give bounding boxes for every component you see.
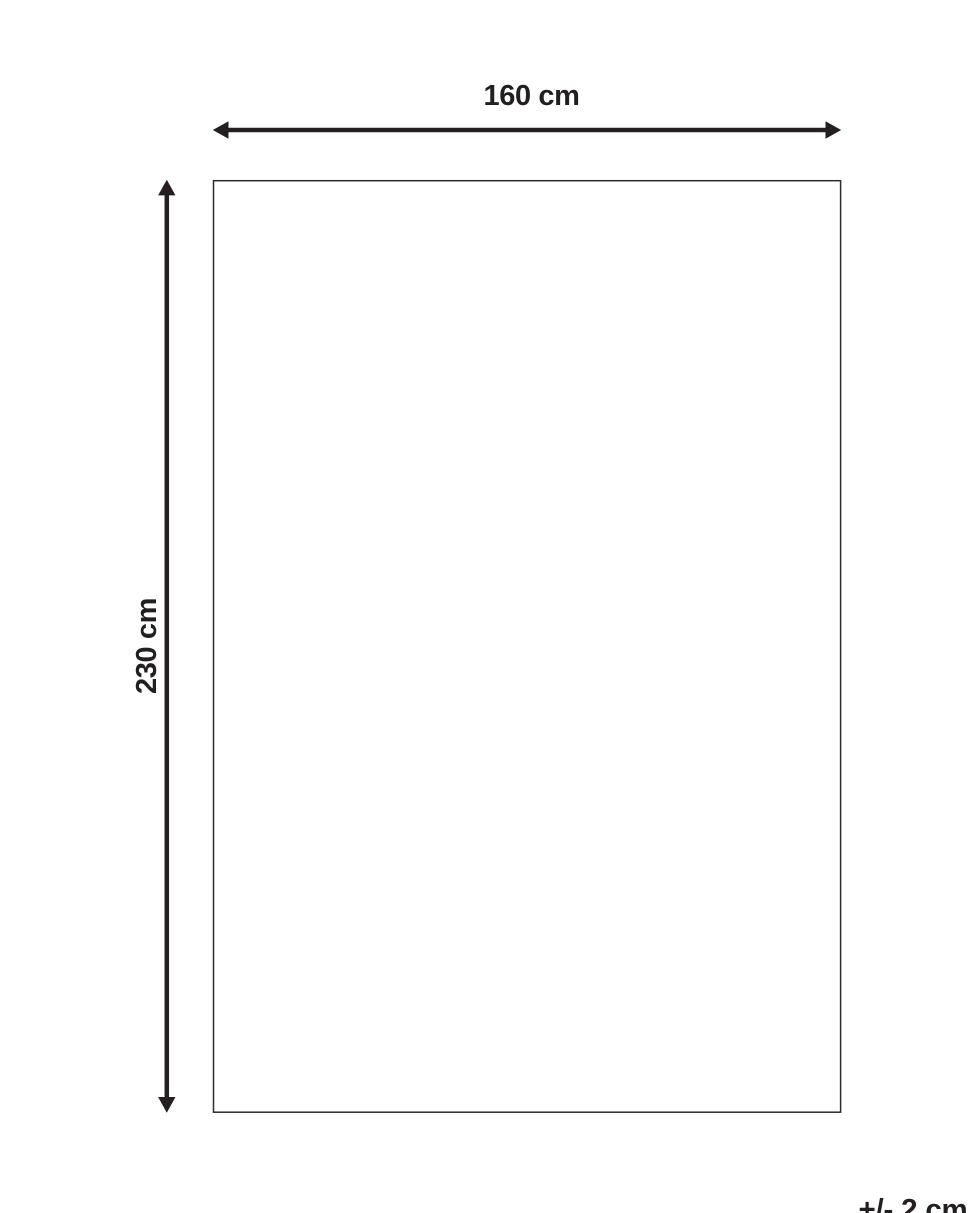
svg-text:160 cm: 160 cm: [484, 80, 580, 112]
svg-text:+/- 2 cm: +/- 2 cm: [859, 1194, 968, 1213]
svg-text:230 cm: 230 cm: [131, 598, 163, 694]
